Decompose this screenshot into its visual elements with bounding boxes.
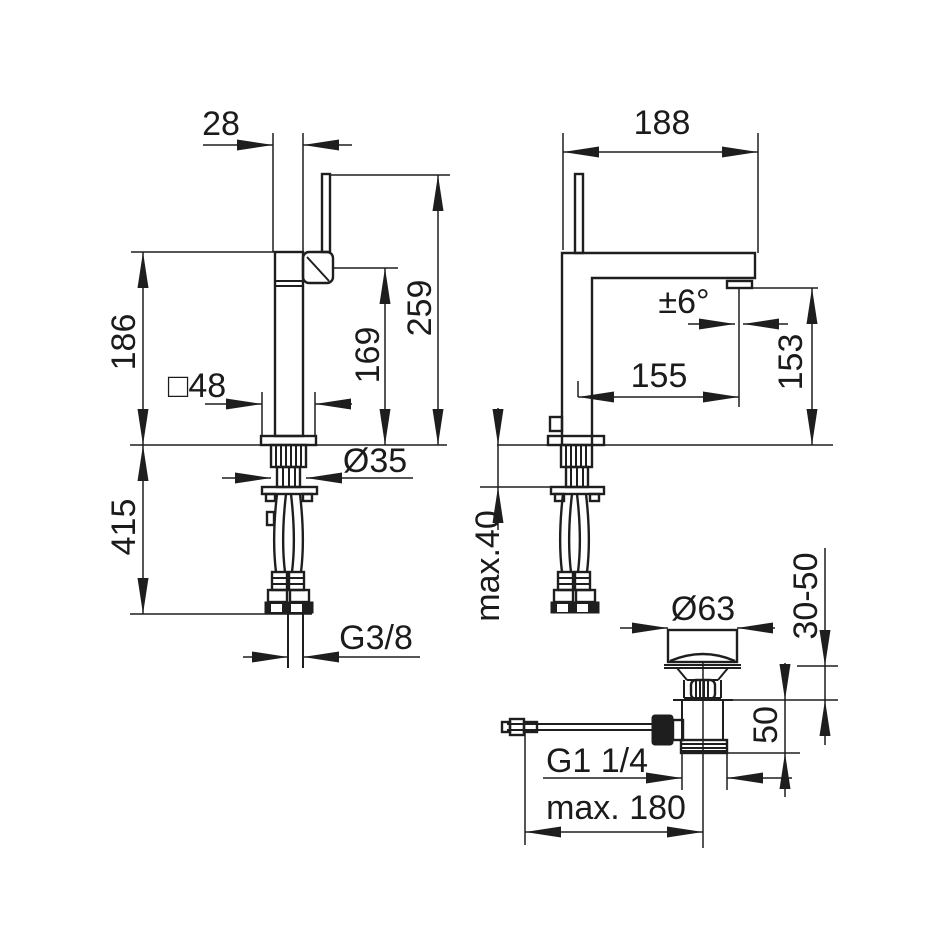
technical-drawing-page: 28 186 169 259 □48 Ø35 415 G3/8 188 ±6° … — [0, 0, 950, 950]
dim-label-flange-diameter: Ø63 — [671, 592, 735, 626]
dim-label-total-height: 259 — [403, 280, 437, 337]
faucet-dimension-drawing — [0, 0, 950, 950]
side-view-lineart-dimensions — [480, 133, 833, 530]
dim-label-waste-thread: G1 1/4 — [546, 744, 648, 778]
dim-label-lever-width: 28 — [202, 107, 240, 141]
dim-label-clamping-range: 30-50 — [789, 553, 823, 640]
dim-label-hose-length: 415 — [107, 499, 141, 556]
dim-label-outlet-height: 169 — [351, 327, 385, 384]
dim-label-aerator-angle: ±6° — [658, 285, 709, 319]
dim-label-depth: 188 — [634, 106, 691, 140]
dim-label-side-outlet-height: 153 — [774, 334, 808, 391]
dim-label-body-height: 186 — [107, 314, 141, 371]
dim-label-spout-reach: 155 — [631, 359, 688, 393]
dim-label-deck-thickness: max.40 — [471, 510, 505, 622]
dim-label-base-square: □48 — [168, 369, 226, 403]
dim-label-supply-thread: G3/8 — [339, 621, 413, 655]
dim-label-rod-length: max. 180 — [546, 791, 686, 825]
dim-label-shank-diameter: Ø35 — [343, 444, 407, 478]
dim-label-thread-length: 50 — [749, 706, 783, 744]
